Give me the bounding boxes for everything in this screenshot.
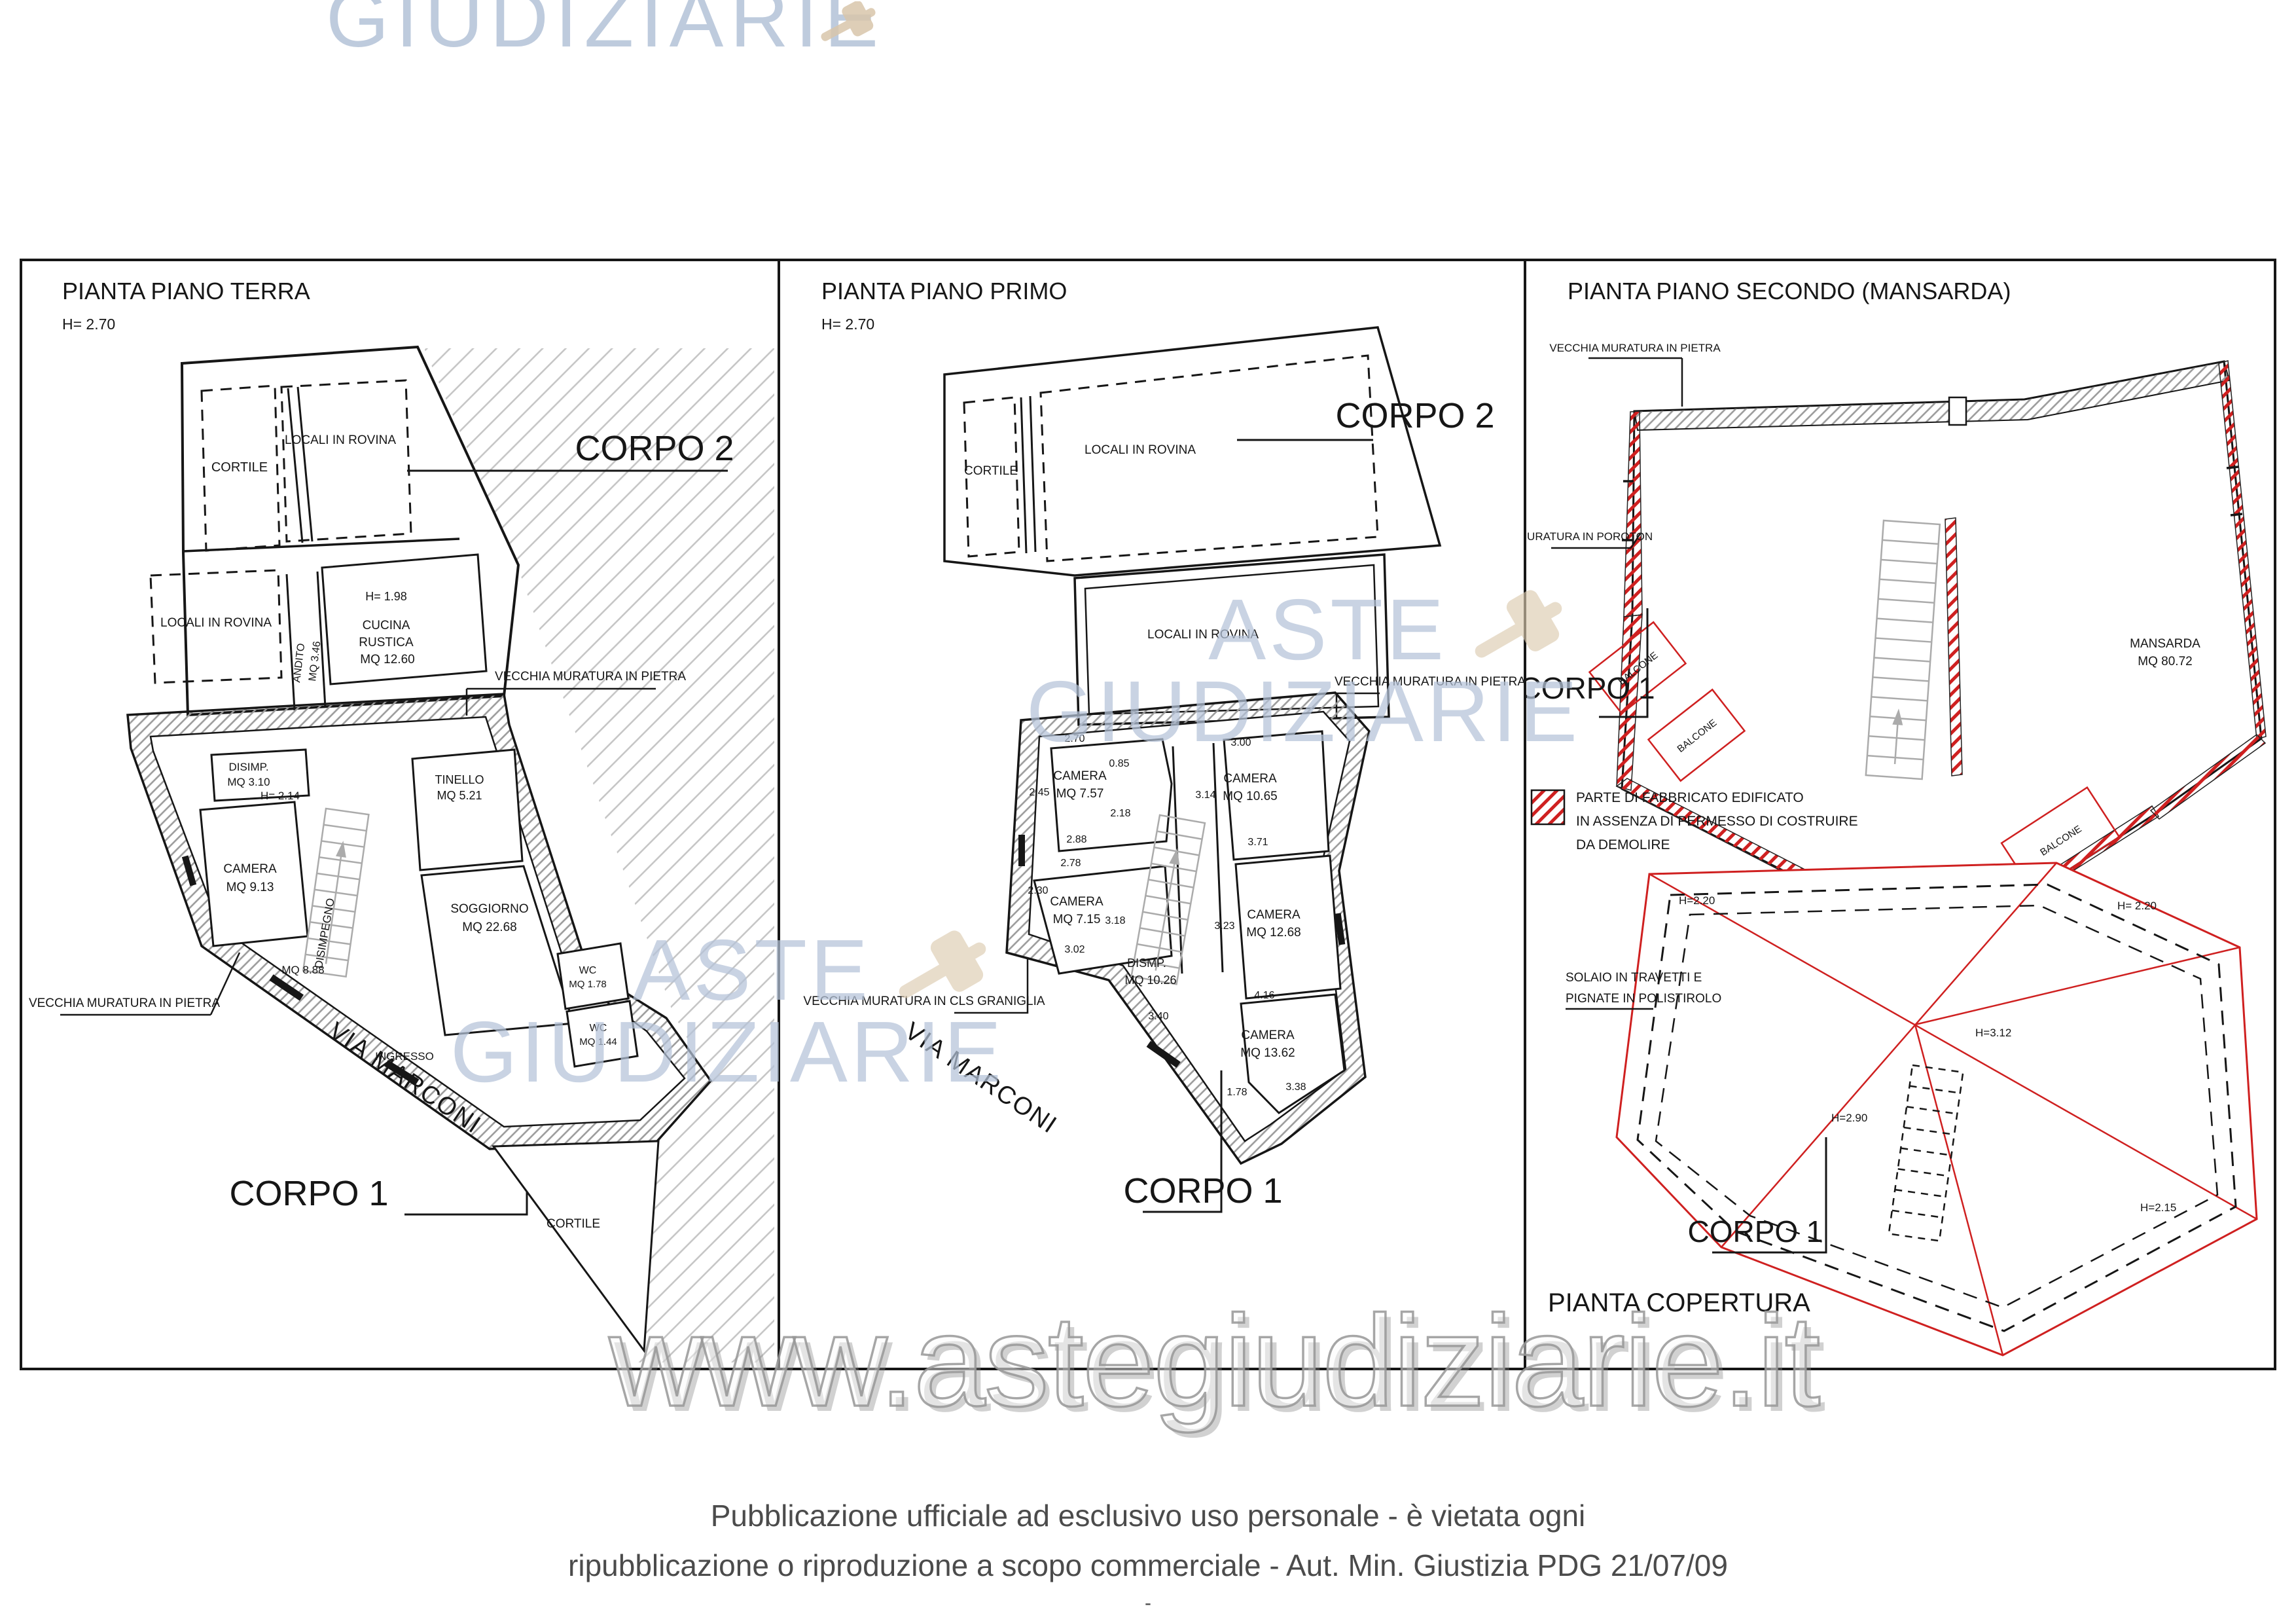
legend-text: DA DEMOLIRE [1576, 837, 1670, 852]
dim: 2.88 [1066, 834, 1086, 845]
corpo1-label: CORPO 1 [1525, 671, 1655, 705]
roof-height: H=2.90 [1831, 1112, 1867, 1124]
roof-title: PIANTA COPERTURA [1548, 1288, 1810, 1317]
room-label: LOCALI IN ROVINA [1147, 628, 1259, 642]
dim: 2.45 [1029, 787, 1049, 798]
wall-note: VECCHIA MURATURA IN PIETRA [1335, 675, 1525, 689]
room-label: SOGGIORNO [450, 902, 528, 916]
room-label: MQ 9.13 [226, 881, 274, 894]
wall-note: VECCHIA MURATURA IN CLS GRANIGLIA [803, 994, 1045, 1008]
room-label: CAMERA [1050, 895, 1103, 909]
scanned-floor-plan-page: { "watermarks": { "top_partial": "GIUDIZ… [0, 0, 2296, 1623]
dim: 3.00 [1230, 737, 1251, 748]
brand-watermark-top: GIUDIZIARIE [326, 0, 885, 65]
panel1-title: PIANTA PIANO TERRA [62, 278, 310, 304]
courtyard [493, 1141, 658, 1351]
room-label: MQ 8.88 [281, 964, 324, 976]
corpo1-label: CORPO 1 [1123, 1171, 1282, 1211]
wall-note: SOLAIO IN TRAVETTI E [1566, 971, 1702, 985]
dim: 2.18 [1110, 808, 1130, 819]
wall-note: VECCHIA MURATURA IN PIETRA [29, 996, 220, 1010]
room-label: CUCINA [363, 619, 410, 632]
room-label: MQ 10.65 [1223, 790, 1277, 803]
panel-divider-1 [778, 259, 780, 1370]
room-label: CAMERA [223, 862, 277, 876]
panel2-height: H= 2.70 [821, 316, 874, 333]
dim: 0.85 [1109, 758, 1129, 769]
height-note: H= 1.98 [365, 590, 407, 603]
dim: 3.14 [1195, 790, 1215, 801]
floor-plan-ground: PIANTA PIANO TERRA H= 2.70 CORTILE LOCAL… [20, 259, 779, 1370]
room-label: MANSARDA [2130, 637, 2200, 651]
roof-height: H=3.12 [1975, 1027, 2011, 1039]
room-label: LOCALI IN ROVINA [160, 616, 272, 630]
footer-line-3: - [0, 1592, 2296, 1614]
panel-divider-2 [1524, 259, 1526, 1370]
corpo1-roof-label: CORPO 1 [1687, 1214, 1823, 1249]
room-label: MQ 12.68 [1246, 926, 1300, 939]
room-label: DISMP. [1127, 957, 1166, 970]
room-label: MQ 10.26 [1124, 974, 1176, 987]
wall-note: VECCHIA MURATURA IN PIETRA [495, 670, 686, 684]
room-label: WC [579, 965, 597, 976]
room-label: MQ 22.68 [462, 921, 516, 934]
room-label: MQ 5.21 [437, 789, 482, 802]
dim: 3.02 [1064, 944, 1085, 955]
dim: 1.78 [1227, 1087, 1247, 1098]
corpo1-building [1007, 693, 1369, 1163]
floor-plan-first: PIANTA PIANO PRIMO H= 2.70 CORTILE LOCAL… [779, 259, 1525, 1370]
room-label: MQ 7.15 [1053, 913, 1101, 926]
roof-plan: H=2.20 H= 2.20 H=3.12 H=2.90 H=2.15 [1617, 863, 2257, 1355]
legend-text: PARTE DI FABBRICATO EDIFICATO [1576, 790, 1804, 805]
roof-height: H=2.20 [1679, 894, 1715, 907]
room-label: RUSTICA [359, 636, 414, 649]
dim: 4.16 [1254, 990, 1274, 1001]
room-label: MQ 7.57 [1056, 787, 1104, 801]
panel3-title: PIANTA PIANO SECONDO (MANSARDA) [1568, 278, 2011, 304]
room-label: MQ 1.78 [569, 979, 607, 990]
dim: 3.71 [1247, 837, 1268, 848]
dim: 2.78 [1060, 858, 1081, 869]
gavel-icon [810, 1, 889, 47]
room-label: CAMERA [1053, 769, 1107, 783]
panel1-height: H= 2.70 [62, 316, 115, 333]
floor-plan-second: PIANTA PIANO SECONDO (MANSARDA) VECCHIA … [1525, 259, 2276, 1370]
panel2-title: PIANTA PIANO PRIMO [821, 278, 1067, 304]
room-label: MQ 80.72 [2138, 655, 2192, 668]
room-label: CORTILE [547, 1217, 600, 1231]
footer-line-1: Pubblicazione ufficiale ad esclusivo uso… [0, 1498, 2296, 1533]
footer-line-2: ripubblicazione o riproduzione a scopo c… [0, 1548, 2296, 1583]
corpo2-building [944, 327, 1440, 725]
dim: 2.70 [1064, 733, 1085, 744]
dim: 3.38 [1285, 1082, 1306, 1093]
room-label: CAMERA [1241, 1029, 1295, 1042]
dim: 2.30 [1028, 885, 1048, 896]
wall-note: MURATURA IN POROTON [1525, 530, 1653, 543]
room-label: WC [590, 1023, 607, 1034]
legend-swatch [1532, 790, 1564, 824]
room-label: DISIMP. [228, 761, 268, 773]
corpo2-label: CORPO 2 [575, 429, 734, 468]
room-label: TINELLO [435, 773, 484, 786]
room-label: CAMERA [1223, 772, 1277, 786]
dim: 3.23 [1214, 921, 1234, 932]
dim: 3.40 [1148, 1011, 1168, 1022]
height-note: H= 2.14 [260, 790, 300, 802]
room-label: CORTILE [964, 464, 1018, 478]
street-label: VIA MARCONI [900, 1017, 1062, 1139]
room-label: LOCALI IN ROVINA [1085, 443, 1196, 457]
room-label: CORTILE [211, 460, 268, 475]
room-label: MQ 12.60 [360, 653, 414, 666]
room-label: MQ 1.44 [579, 1036, 617, 1048]
room-label: MQ 13.62 [1240, 1046, 1295, 1060]
room-label: MQ 3.10 [227, 776, 270, 788]
corpo2-label: CORPO 2 [1335, 396, 1494, 435]
wall-note: VECCHIA MURATURA IN PIETRA [1549, 342, 1721, 354]
dim: 3.18 [1105, 915, 1125, 926]
room-label: CAMERA [1247, 908, 1300, 922]
roof-height: H=2.15 [2140, 1201, 2176, 1214]
corpo1-label: CORPO 1 [229, 1174, 388, 1213]
legend-text: IN ASSENZA DI PERMESSO DI COSTRUIRE [1576, 814, 1858, 829]
wall-note: PIGNATE IN POLISTIROLO [1566, 992, 1721, 1006]
roof-height: H= 2.20 [2117, 900, 2157, 912]
room-label: LOCALI IN ROVINA [285, 433, 396, 447]
